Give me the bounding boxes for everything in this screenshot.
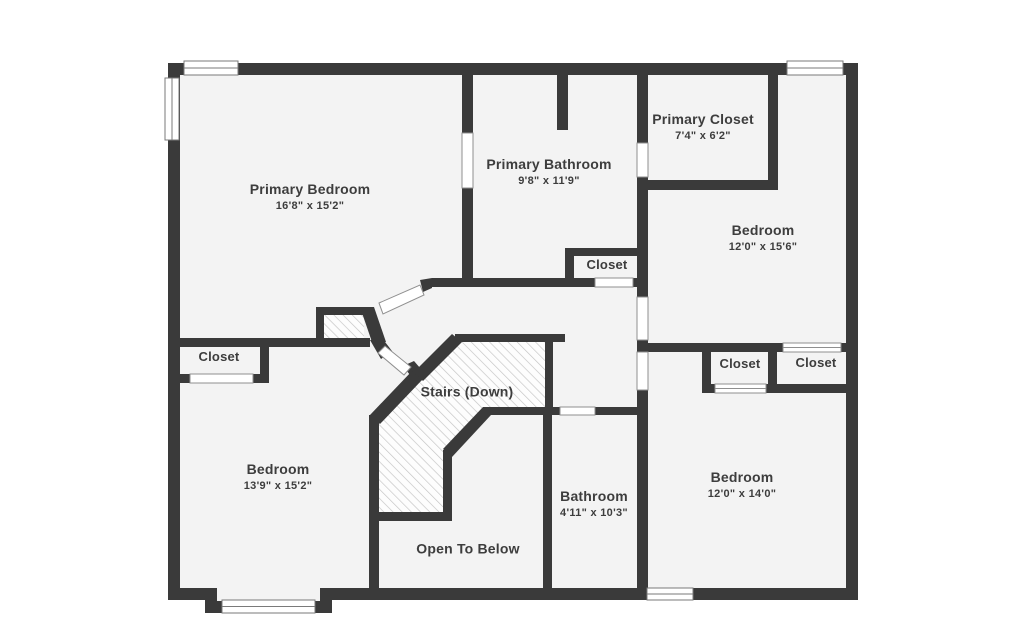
room-label-primary-closet: Primary Closet 7'4" x 6'2"	[652, 110, 754, 144]
room-label-bathroom: Bathroom 4'11" x 10'3"	[560, 487, 628, 521]
room-label-primary-bedroom: Primary Bedroom 16'8" x 15'2"	[250, 180, 370, 214]
room-label-bedroom-bottom-left: Bedroom 13'9" x 15'2"	[244, 460, 313, 494]
room-label-closet-hall: Closet	[587, 256, 628, 274]
room-label-stairs: Stairs (Down)	[421, 383, 514, 402]
room-label-open-to-below: Open To Below	[416, 540, 519, 559]
room-label-closet-mid-right: Closet	[720, 355, 761, 373]
floorplan-svg	[0, 0, 1024, 624]
room-label-primary-bathroom: Primary Bathroom 9'8" x 11'9"	[486, 155, 611, 189]
floorplan-canvas: Primary Bedroom 16'8" x 15'2" Primary Ba…	[0, 0, 1024, 624]
room-label-bedroom-bottom-right: Bedroom 12'0" x 14'0"	[708, 468, 777, 502]
room-label-bedroom-top-right: Bedroom 12'0" x 15'6"	[729, 221, 798, 255]
room-label-closet-left: Closet	[199, 348, 240, 366]
room-label-closet-far-right: Closet	[796, 354, 837, 372]
